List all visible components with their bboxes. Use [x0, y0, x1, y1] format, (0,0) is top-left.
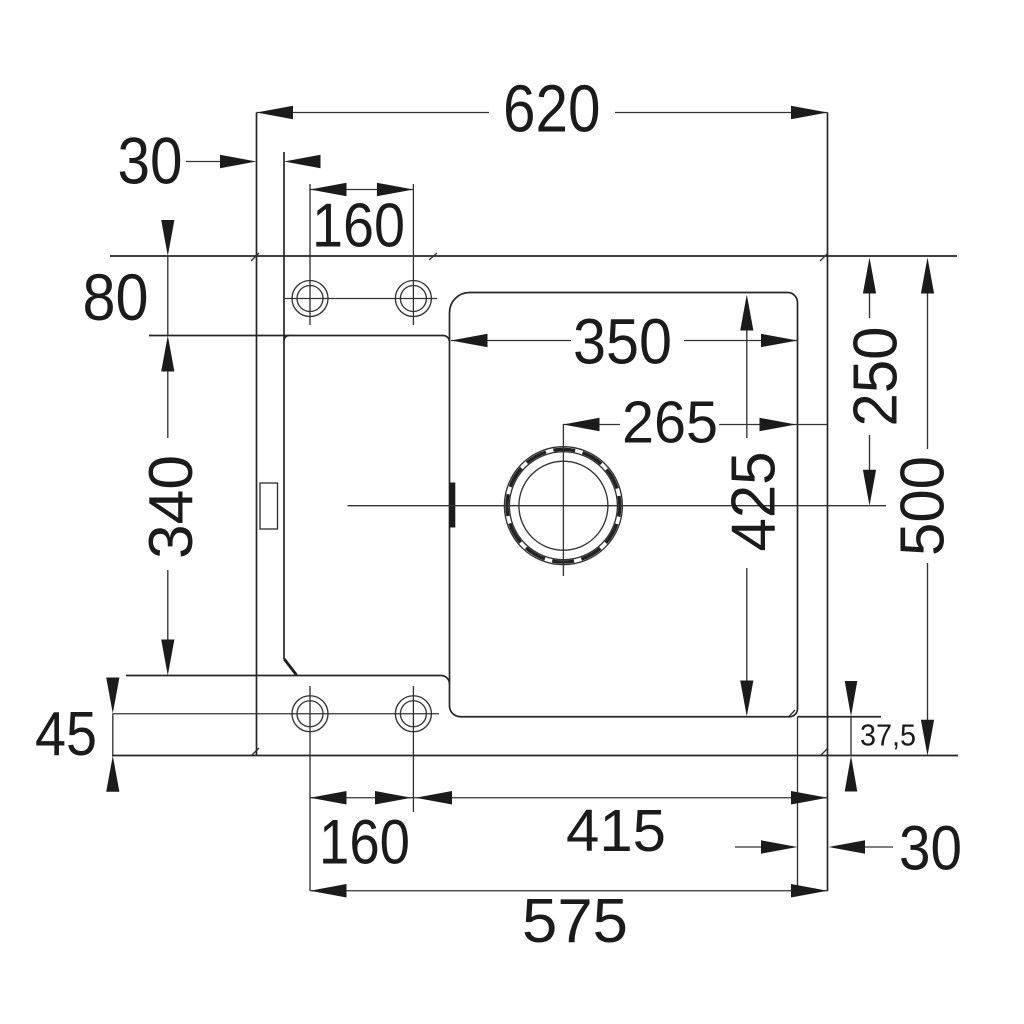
svg-text:250: 250	[842, 327, 911, 427]
svg-text:37,5: 37,5	[860, 718, 916, 753]
svg-text:500: 500	[889, 456, 958, 556]
svg-text:425: 425	[720, 452, 789, 552]
svg-text:415: 415	[566, 798, 666, 864]
svg-text:350: 350	[573, 306, 672, 378]
svg-text:340: 340	[137, 455, 206, 559]
svg-text:265: 265	[622, 390, 718, 456]
svg-text:160: 160	[312, 192, 405, 261]
svg-text:45: 45	[35, 700, 97, 769]
svg-text:160: 160	[319, 808, 410, 878]
svg-text:620: 620	[503, 72, 601, 147]
svg-text:30: 30	[118, 124, 183, 198]
svg-text:80: 80	[83, 260, 149, 334]
svg-text:30: 30	[899, 814, 962, 884]
svg-text:575: 575	[522, 887, 628, 956]
